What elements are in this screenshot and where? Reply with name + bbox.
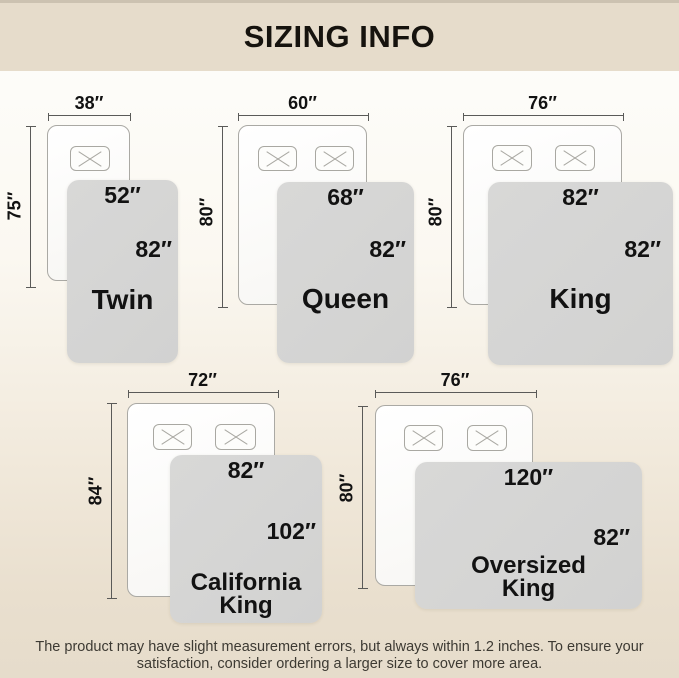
california-king-blanket-width-label: 82″ xyxy=(170,457,322,484)
name-line: California xyxy=(170,571,322,594)
pillow-icon xyxy=(258,146,297,171)
king-mattress-length-label: 80″ xyxy=(426,198,447,227)
oversized-king-blanket-length-label: 82″ xyxy=(415,524,642,551)
california-king-blanket-length-label: 102″ xyxy=(170,518,322,545)
pillow-icon xyxy=(215,424,256,450)
california-king-length-dimension-line xyxy=(107,403,117,599)
queen-blanket-width-label: 68″ xyxy=(277,184,414,211)
twin-blanket-length-label: 82″ xyxy=(67,236,178,263)
oversized-king-mattress-width-label: 76″ xyxy=(375,370,535,391)
twin-mattress-width-label: 38″ xyxy=(48,93,130,114)
header-band: SIZING INFO xyxy=(0,0,679,71)
king-blanket-width-label: 82″ xyxy=(488,184,673,211)
king-mattress-width-label: 76″ xyxy=(463,93,622,114)
pillow-icon xyxy=(467,425,507,451)
queen-name-label: Queen xyxy=(277,283,414,315)
oversized-king-name-label: Oversized King xyxy=(415,554,642,600)
pillow-icon xyxy=(492,145,532,171)
california-king-width-dimension-line xyxy=(128,390,279,398)
twin-width-dimension-line xyxy=(48,113,131,121)
queen-width-dimension-line xyxy=(238,113,369,121)
king-length-dimension-line xyxy=(447,126,457,308)
queen-mattress-length-label: 80″ xyxy=(197,198,218,227)
pillow-icon xyxy=(315,146,354,171)
california-king-mattress-width-label: 72″ xyxy=(128,370,277,391)
measurement-note-line2: satisfaction, consider ordering a larger… xyxy=(0,656,679,673)
king-width-dimension-line xyxy=(463,113,624,121)
oversized-king-length-dimension-line xyxy=(358,406,368,589)
oversized-king-mattress-length-label: 80″ xyxy=(337,474,358,503)
king-blanket-length-label: 82″ xyxy=(488,236,673,263)
twin-name-label: Twin xyxy=(67,284,178,316)
pillow-icon xyxy=(153,424,192,450)
measurement-note-line1: The product may have slight measurement … xyxy=(0,639,679,656)
pillow-icon xyxy=(555,145,595,171)
oversized-king-blanket-width-label: 120″ xyxy=(415,464,642,491)
queen-blanket-length-label: 82″ xyxy=(277,236,414,263)
queen-mattress-width-label: 60″ xyxy=(238,93,367,114)
name-line: Oversized xyxy=(415,554,642,577)
oversized-king-width-dimension-line xyxy=(375,390,537,398)
twin-blanket-width-label: 52″ xyxy=(67,182,178,209)
pillow-icon xyxy=(404,425,443,451)
sizing-info-graphic: SIZING INFO 38″ 75″ 52″ 82″ Twin 60″ 80″… xyxy=(0,0,679,678)
california-king-name-label: California King xyxy=(170,571,322,617)
twin-length-dimension-line xyxy=(26,126,36,288)
twin-mattress-length-label: 75″ xyxy=(5,192,26,221)
page-title: SIZING INFO xyxy=(244,19,436,55)
name-line: King xyxy=(170,594,322,617)
king-name-label: King xyxy=(488,283,673,315)
name-line: King xyxy=(415,577,642,600)
pillow-icon xyxy=(70,146,110,171)
queen-length-dimension-line xyxy=(218,126,228,308)
california-king-mattress-length-label: 84″ xyxy=(86,477,107,506)
measurement-note: The product may have slight measurement … xyxy=(0,639,679,672)
